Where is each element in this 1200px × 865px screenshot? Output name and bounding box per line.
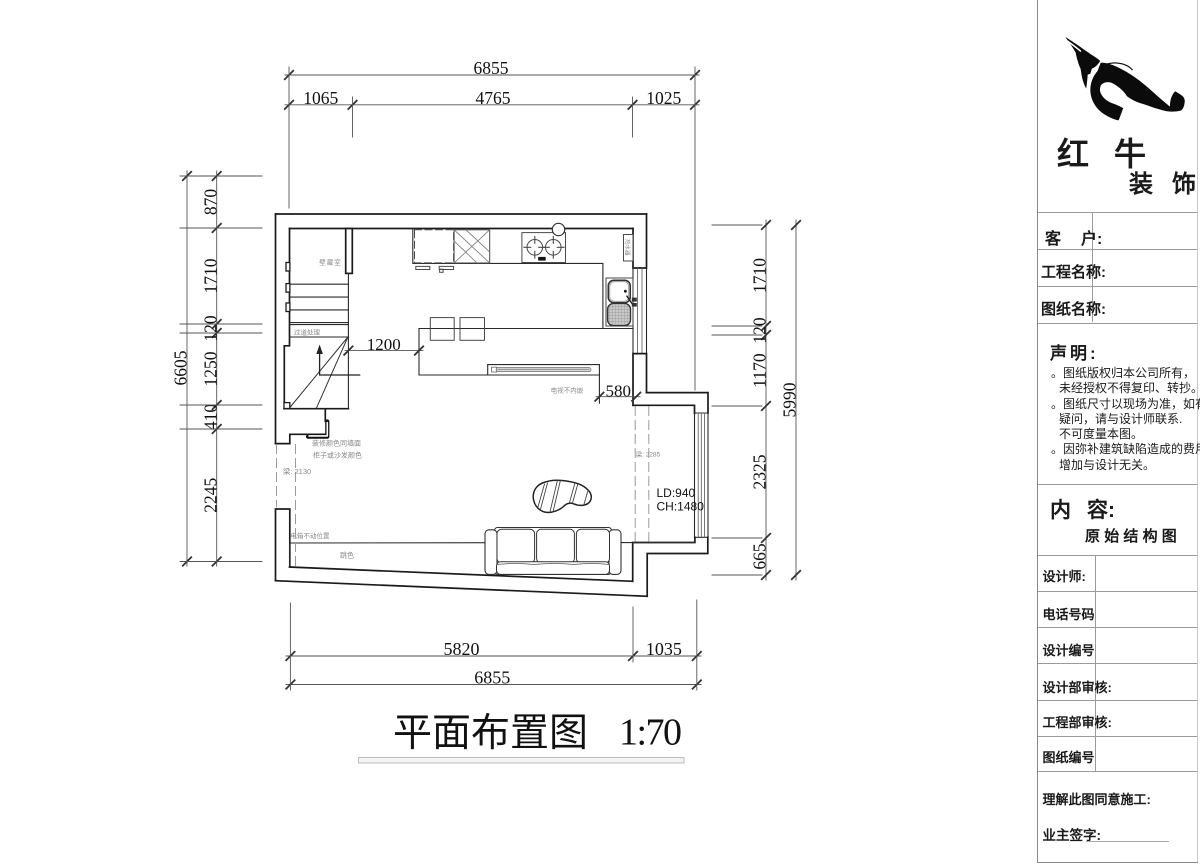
svg-text:装修颜色同墙面: 装修颜色同墙面 [312, 439, 361, 448]
svg-text:1065: 1065 [303, 88, 338, 108]
svg-text:电视不内嵌: 电视不内嵌 [551, 386, 584, 395]
svg-text:1035: 1035 [646, 639, 682, 659]
svg-text:580: 580 [605, 381, 631, 400]
svg-text:5990: 5990 [779, 382, 799, 417]
svg-text:过道处理: 过道处理 [294, 328, 321, 337]
svg-text:6855: 6855 [474, 58, 509, 78]
svg-text:1200: 1200 [367, 335, 401, 354]
svg-text:6605: 6605 [171, 350, 191, 385]
svg-text:柜子或沙发颜色: 柜子或沙发颜色 [313, 451, 362, 460]
svg-text:1250: 1250 [200, 351, 220, 386]
svg-text:1170: 1170 [749, 353, 769, 388]
svg-text:5820: 5820 [444, 639, 480, 659]
svg-text:120: 120 [200, 315, 220, 342]
svg-text:1025: 1025 [646, 88, 681, 108]
svg-text:电箱不动位置: 电箱不动位置 [291, 531, 331, 540]
svg-text:跳色: 跳色 [340, 551, 354, 560]
svg-text:梁: 2130: 梁: 2130 [283, 467, 311, 476]
svg-text:梁: 2285: 梁: 2285 [636, 450, 661, 459]
svg-text:410: 410 [200, 404, 220, 431]
svg-text:LD:940: LD:940 [657, 486, 696, 500]
svg-text:2245: 2245 [200, 478, 220, 513]
svg-text:120: 120 [749, 317, 769, 344]
svg-text:壁藏室: 壁藏室 [319, 258, 342, 267]
svg-text:1710: 1710 [749, 258, 769, 293]
svg-text:870: 870 [200, 189, 220, 216]
svg-text:2325: 2325 [749, 454, 769, 489]
svg-text:CH:1480: CH:1480 [657, 500, 705, 514]
svg-text:1:70: 1:70 [619, 712, 681, 754]
svg-text:6855: 6855 [474, 668, 510, 688]
svg-text:4765: 4765 [476, 88, 511, 108]
svg-text:平面布置图: 平面布置图 [393, 712, 588, 755]
svg-text:665: 665 [749, 543, 769, 570]
svg-text:热水器: 热水器 [624, 239, 632, 256]
svg-text:1710: 1710 [200, 258, 220, 293]
